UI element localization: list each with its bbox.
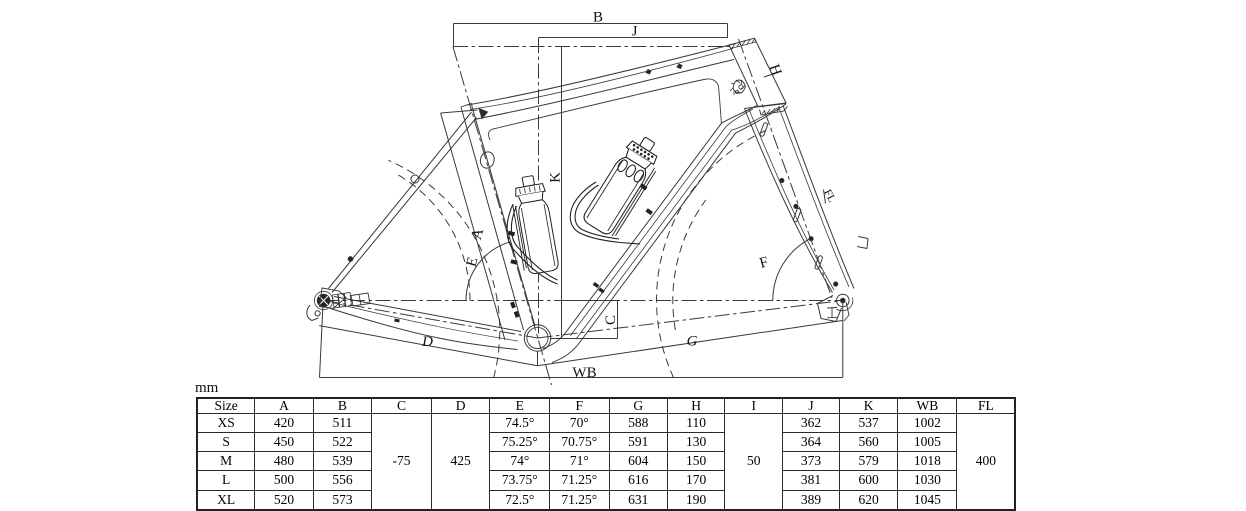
svg-text:C: C [603,315,619,325]
svg-text:B: B [593,10,603,26]
svg-text:G: G [687,334,698,350]
svg-text:K: K [548,172,564,183]
svg-text:A: A [469,226,487,241]
svg-text:E: E [464,255,482,268]
svg-text:WB: WB [572,365,596,381]
svg-text:F: F [758,254,770,272]
svg-text:J: J [632,24,638,40]
